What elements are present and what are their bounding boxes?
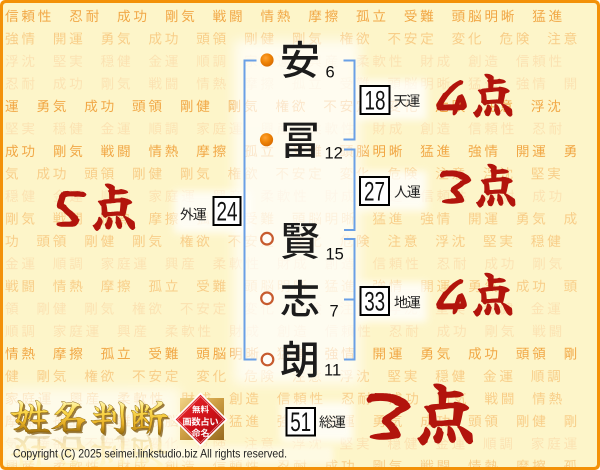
svg-text:15: 15 bbox=[326, 246, 344, 264]
svg-text:11: 11 bbox=[324, 362, 341, 380]
svg-text:33: 33 bbox=[364, 287, 385, 317]
svg-text:27: 27 bbox=[364, 177, 385, 207]
svg-text:51: 51 bbox=[290, 407, 311, 437]
svg-text:12: 12 bbox=[325, 145, 343, 163]
svg-text:6: 6 bbox=[326, 64, 335, 82]
svg-text:18: 18 bbox=[365, 86, 386, 116]
svg-text:24: 24 bbox=[217, 197, 238, 227]
svg-text:Copyright (C) 2025 seimei.link: Copyright (C) 2025 seimei.linkstudio.biz… bbox=[13, 447, 287, 461]
svg-text:7: 7 bbox=[330, 303, 339, 321]
